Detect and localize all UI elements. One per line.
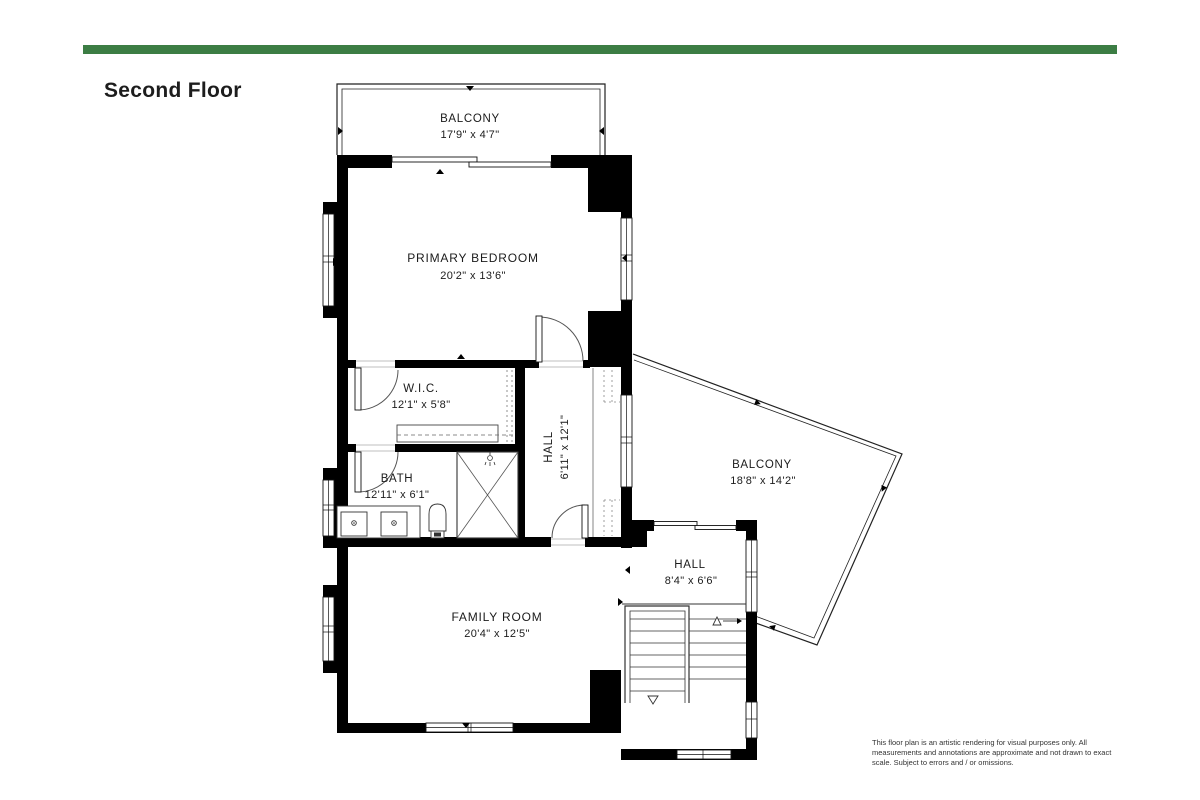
- vanity: [337, 506, 420, 538]
- room-dims-family-room: 20'4" x 12'5": [464, 628, 530, 640]
- room-dims-hall-upper: 6'11" x 12'1": [559, 415, 571, 480]
- stair-down-marker: [648, 696, 658, 704]
- shower: [457, 452, 518, 538]
- primary-bedroom-door: [536, 316, 583, 367]
- room-dims-balcony-right: 18'8" x 14'2": [730, 475, 796, 487]
- room-label-balcony-top: BALCONY: [440, 113, 500, 125]
- room-dims-hall-lower: 8'4" x 6'6": [665, 575, 718, 587]
- hall-door: [551, 505, 588, 545]
- stair-railing-inner: [630, 611, 685, 703]
- room-label-hall-upper: HALL: [543, 431, 555, 463]
- stair-landing-bottom-window: [677, 750, 731, 759]
- hall-right-window: [621, 395, 632, 487]
- lower-hall-balcony-slider-door: [654, 520, 736, 531]
- room-label-wic: W.I.C.: [403, 383, 439, 395]
- room-label-balcony-right: BALCONY: [732, 459, 792, 471]
- family-left-window: [323, 597, 334, 661]
- family-bottom-window: [426, 723, 513, 732]
- room-label-bath: BATH: [381, 473, 414, 485]
- room-dims-wic: 12'1" x 5'8": [391, 399, 450, 411]
- hall-ledge-dashes: [593, 368, 620, 537]
- stair-treads-left: [630, 619, 685, 691]
- stair-landing-right-window: [746, 702, 757, 738]
- toilet: [429, 504, 446, 538]
- room-dims-bath: 12'11" x 6'1": [365, 489, 430, 501]
- walls: [323, 155, 757, 760]
- room-label-primary-bedroom: PRIMARY BEDROOM: [407, 251, 539, 265]
- right-balcony-railing: [633, 354, 902, 645]
- room-label-family-room: FAMILY ROOM: [451, 610, 542, 624]
- room-labels: BALCONY 17'9" x 4'7" PRIMARY BEDROOM 20'…: [365, 113, 796, 640]
- stair-railing-outer: [625, 606, 689, 703]
- stairs: [622, 604, 746, 704]
- lower-hall-right-window: [746, 540, 757, 612]
- stair-up-marker: [713, 617, 742, 625]
- bath-left-window: [323, 480, 334, 536]
- room-label-hall-lower: HALL: [674, 559, 706, 571]
- bedroom-left-window: [323, 214, 334, 306]
- disclaimer-text: This floor plan is an artistic rendering…: [872, 738, 1112, 768]
- room-dims-balcony-top: 17'9" x 4'7": [440, 129, 499, 141]
- room-dims-primary-bedroom: 20'2" x 13'6": [440, 270, 506, 282]
- bedroom-balcony-slider-door: [392, 157, 551, 167]
- windows: [323, 157, 757, 759]
- floor-plan-page: Second Floor: [0, 0, 1200, 800]
- stair-treads-right: [689, 619, 746, 679]
- floor-plan-drawing: BALCONY 17'9" x 4'7" PRIMARY BEDROOM 20'…: [0, 0, 1200, 800]
